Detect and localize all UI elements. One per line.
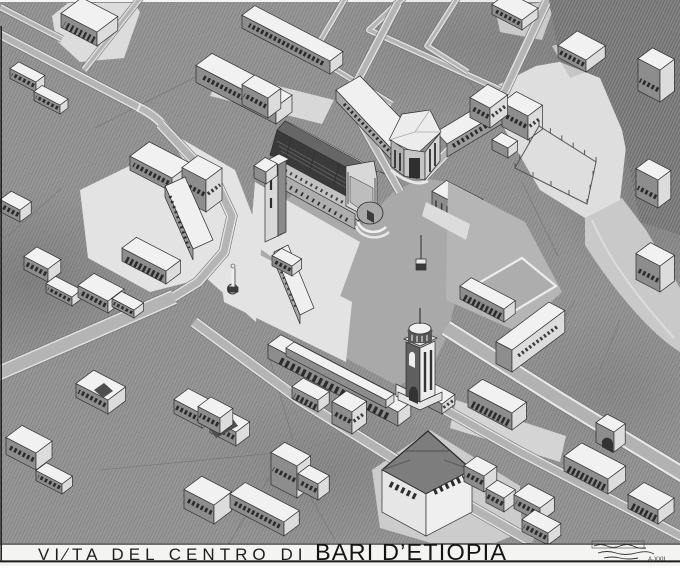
svg-text:A·XXII: A·XXII	[648, 557, 666, 563]
svg-text:VI∕TA DEL CENTRO DI: VI∕TA DEL CENTRO DI	[38, 545, 306, 564]
svg-text:BARI D’ETIOPIA: BARI D’ETIOPIA	[315, 539, 507, 565]
